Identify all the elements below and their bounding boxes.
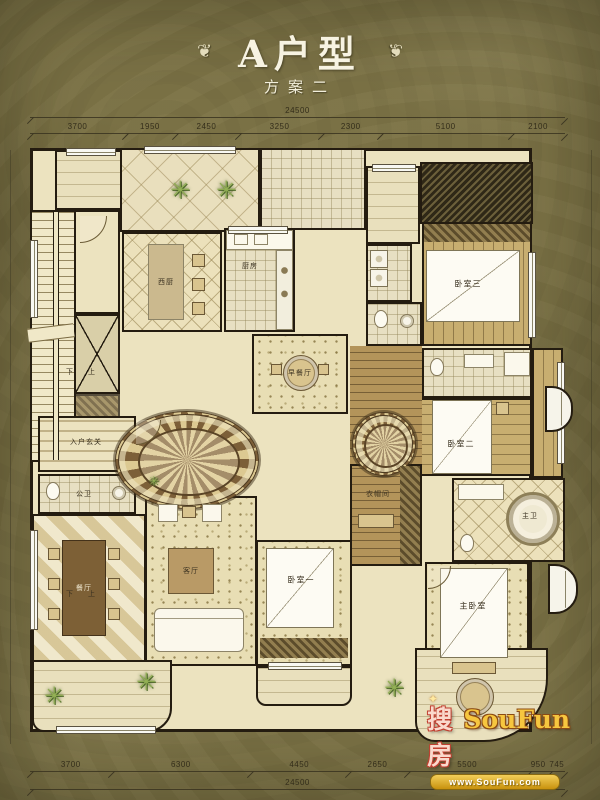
armchair <box>202 504 222 522</box>
dim-top-total: 24500 <box>30 106 565 118</box>
stair-up-label: 上 <box>88 367 96 377</box>
bench <box>452 662 496 674</box>
window <box>528 252 536 338</box>
room-label-living: 客厅 <box>183 566 199 576</box>
chair <box>318 364 329 375</box>
plant-icon: ✳ <box>149 476 160 489</box>
dim-segment: 2300 <box>321 122 380 134</box>
room-label-breakfast: 早餐厅 <box>288 368 312 378</box>
toilet-icon <box>430 358 444 376</box>
dim-segment: 2100 <box>511 122 565 134</box>
bg-patch <box>533 148 563 344</box>
armchair <box>158 504 178 522</box>
soufun-url: www.SouFun.com <box>430 774 560 790</box>
stool <box>192 302 205 315</box>
roof-terrace <box>260 148 366 230</box>
window <box>228 226 288 234</box>
nightstand <box>496 402 509 415</box>
medallion-inner-ring <box>364 424 408 468</box>
dim-left-line <box>10 150 11 744</box>
room-label-bedroom-1: 卧室一 <box>288 575 315 586</box>
room-label-west-kitchen: 西厨 <box>158 277 174 287</box>
bench <box>358 514 394 528</box>
plant-icon: ✳ <box>44 684 64 708</box>
plant-icon: ✳ <box>216 178 236 202</box>
washer-icon <box>370 250 388 268</box>
room-label-bedroom-2: 卧室二 <box>448 439 475 450</box>
bay-window <box>545 386 573 432</box>
sparkle-icon: ✦ <box>428 692 438 706</box>
floor-plan-page: ❦ A户型 ❦ 方案二 24500 3700 1950 2450 3250 23… <box>0 0 600 800</box>
window <box>56 726 156 734</box>
dim-segment: 3700 <box>30 760 111 772</box>
window <box>66 148 116 156</box>
shower <box>504 352 530 376</box>
chair <box>108 578 120 590</box>
chair <box>48 608 60 620</box>
dim-segment: 2450 <box>175 122 238 134</box>
dim-segment: 2650 <box>348 760 406 772</box>
sink-icon <box>400 314 414 328</box>
dim-segment: 5100 <box>380 122 511 134</box>
left-flourish-icon: ❦ <box>197 41 212 62</box>
door-arc <box>80 216 107 243</box>
chair <box>48 578 60 590</box>
dim-top-segments: 3700 1950 2450 3250 2300 5100 2100 <box>30 122 565 134</box>
ac-platform <box>55 150 122 210</box>
plant-icon: ✳ <box>170 178 190 202</box>
page-title: A户型 <box>238 24 362 78</box>
page-title-row: ❦ A户型 ❦ <box>0 24 600 78</box>
balcony-center <box>256 666 352 706</box>
window <box>30 240 38 318</box>
dim-segment: 4450 <box>250 760 348 772</box>
window <box>144 146 236 154</box>
window <box>268 662 342 670</box>
soufun-chinese: 搜房 <box>420 700 460 772</box>
window <box>372 164 416 172</box>
chair <box>108 548 120 560</box>
dim-segment: 6300 <box>111 760 250 772</box>
page-subtitle: 方案二 <box>0 76 600 97</box>
sink <box>234 234 248 245</box>
bay-window <box>548 564 578 614</box>
room-label-bedroom-3: 卧室三 <box>455 279 482 290</box>
sofa <box>154 608 244 652</box>
bed <box>266 548 334 628</box>
soufun-logo: ✦ 搜房 SouFun <box>420 700 570 772</box>
room-label-closet: 衣帽间 <box>366 489 390 499</box>
chair <box>108 608 120 620</box>
dim-segment: 24500 <box>30 106 565 118</box>
toilet-icon <box>460 534 474 552</box>
bed <box>432 400 492 474</box>
room-label-entry: 入户玄关 <box>70 437 102 447</box>
floor-plan: 下 上 下 上 ✳ ✳ 西厨 厨房 <box>28 148 563 744</box>
soufun-watermark: ✦ 搜房 SouFun www.SouFun.com <box>420 700 570 790</box>
toilet-icon <box>46 482 60 500</box>
chair <box>48 548 60 560</box>
room-label-dining: 餐厅 <box>76 583 92 593</box>
stove <box>276 250 293 330</box>
dim-segment: 1950 <box>125 122 175 134</box>
dim-segment: 3250 <box>238 122 321 134</box>
sink-icon <box>112 486 126 500</box>
room-label-kitchen: 厨房 <box>242 261 258 271</box>
room-label-master-bath: 主卫 <box>522 511 538 521</box>
toilet-icon <box>374 310 388 328</box>
bed <box>440 568 508 658</box>
right-flourish-icon: ❦ <box>388 41 403 62</box>
stair-lobby <box>74 210 120 314</box>
service-balcony <box>366 166 420 244</box>
wardrobe <box>260 638 348 658</box>
sink <box>254 234 268 245</box>
room-label-master-bedroom: 主卧室 <box>460 601 487 612</box>
side-table <box>182 506 196 518</box>
vanity <box>464 354 494 368</box>
stair-down-label: 下 <box>66 589 74 599</box>
soufun-english: SouFun <box>463 705 570 734</box>
stool <box>192 278 205 291</box>
stool <box>192 254 205 267</box>
stair-down-label: 下 <box>66 367 74 377</box>
dim-right-line <box>591 150 592 744</box>
wardrobe <box>400 466 420 564</box>
window <box>30 530 38 630</box>
room-label-guest-bath: 公卫 <box>76 489 92 499</box>
plant-icon: ✳ <box>136 670 156 694</box>
wardrobe <box>424 224 530 242</box>
stair-break-line <box>27 323 75 343</box>
washer-icon <box>370 269 388 287</box>
dim-segment: 3700 <box>30 122 125 134</box>
elevator <box>74 314 120 394</box>
double-vanity <box>458 484 504 500</box>
chair <box>271 364 282 375</box>
dark-roof <box>420 162 533 224</box>
plant-icon: ✳ <box>384 676 404 700</box>
